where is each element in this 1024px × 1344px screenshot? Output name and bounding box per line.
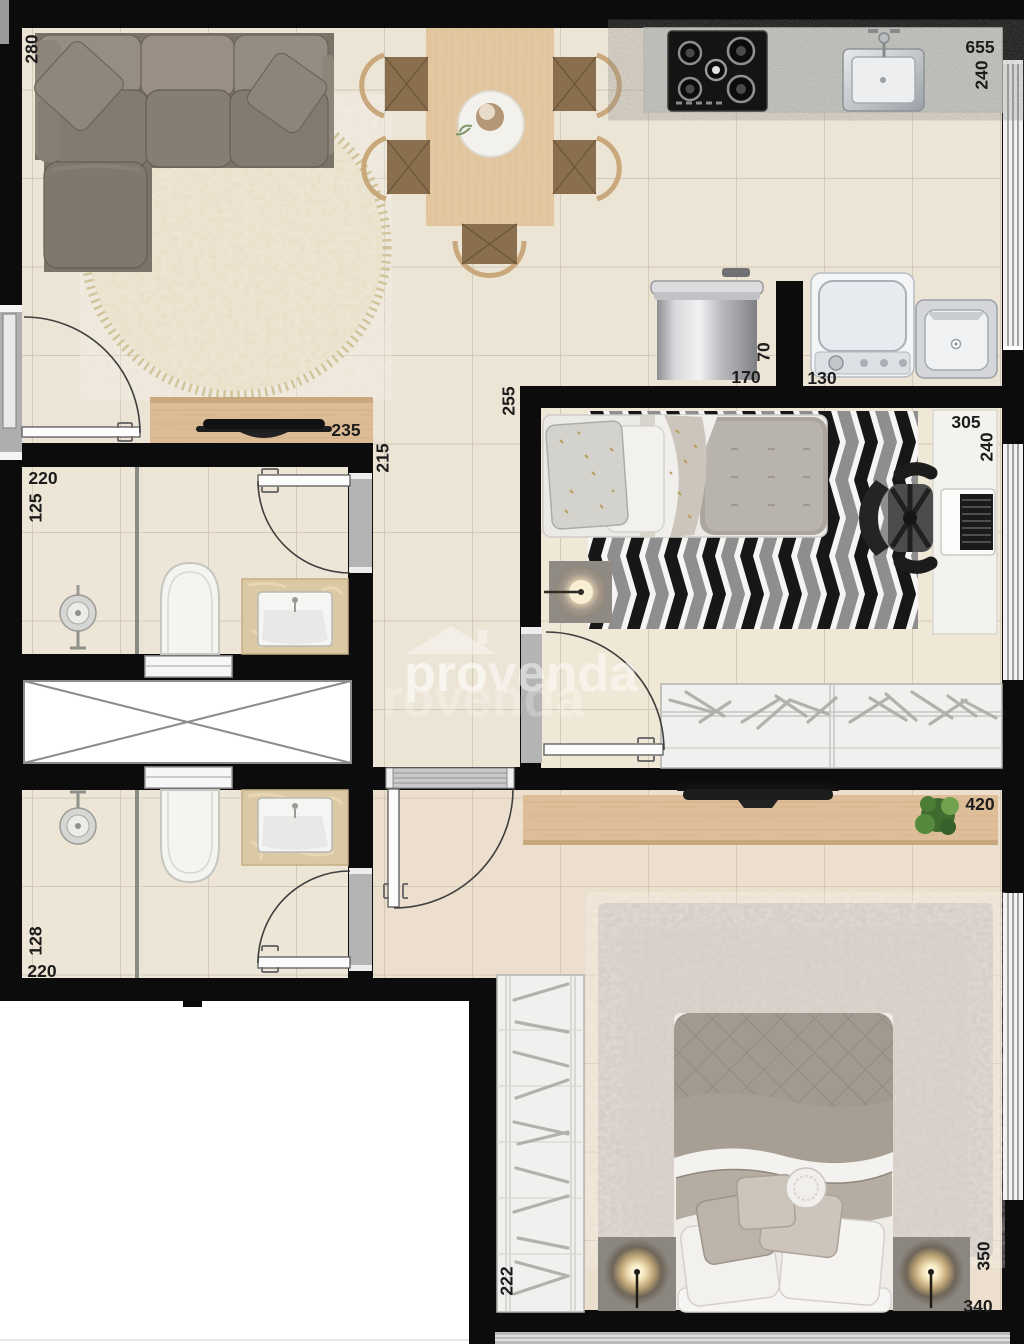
svg-text:70: 70 <box>754 342 774 362</box>
svg-text:280: 280 <box>22 34 42 63</box>
svg-text:655: 655 <box>965 37 994 57</box>
svg-text:220: 220 <box>28 468 57 488</box>
svg-text:240: 240 <box>977 432 997 461</box>
svg-text:215: 215 <box>373 443 393 472</box>
svg-text:128: 128 <box>26 926 46 955</box>
svg-text:170: 170 <box>731 367 760 387</box>
svg-text:222: 222 <box>497 1266 517 1295</box>
svg-text:rovenda: rovenda <box>382 670 585 728</box>
svg-text:340: 340 <box>963 1296 992 1316</box>
svg-text:240: 240 <box>972 60 992 89</box>
svg-text:420: 420 <box>965 794 994 814</box>
svg-text:130: 130 <box>807 368 836 388</box>
svg-text:125: 125 <box>26 493 46 522</box>
svg-text:350: 350 <box>974 1241 994 1270</box>
svg-text:220: 220 <box>27 961 56 981</box>
svg-text:255: 255 <box>499 386 519 415</box>
svg-text:235: 235 <box>331 420 360 440</box>
svg-text:305: 305 <box>951 412 980 432</box>
